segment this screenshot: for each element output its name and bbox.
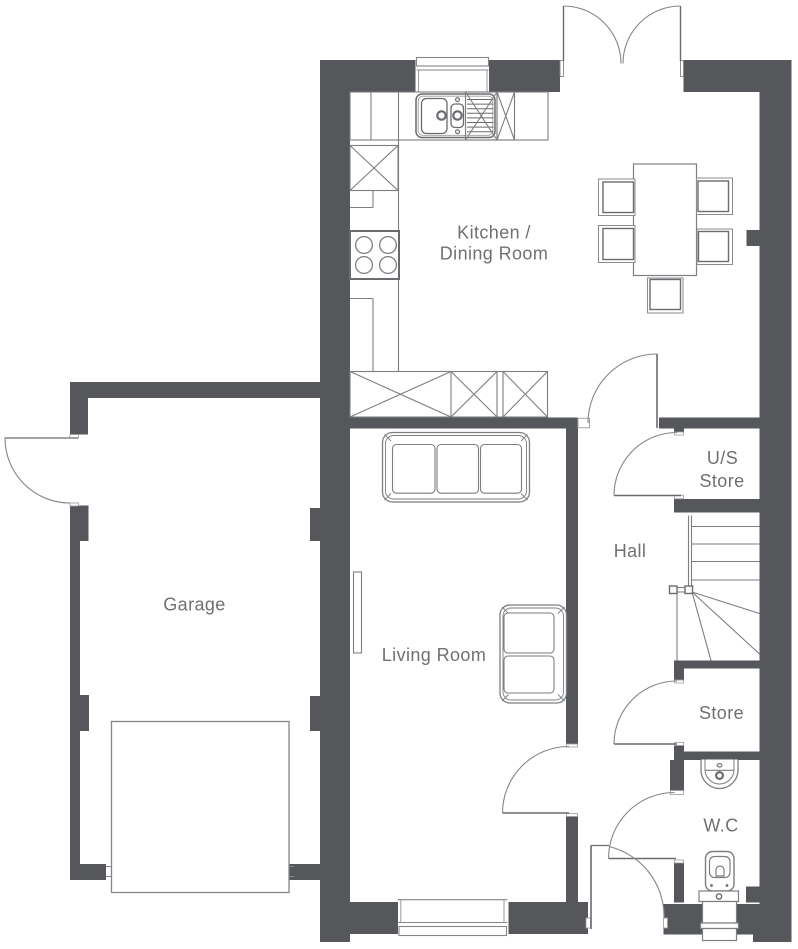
svg-text:Hall: Hall — [614, 541, 647, 561]
svg-text:Store: Store — [699, 471, 744, 491]
svg-text:Store: Store — [699, 703, 744, 723]
svg-text:Kitchen /: Kitchen / — [457, 223, 531, 243]
svg-text:Living Room: Living Room — [382, 645, 486, 665]
svg-text:W.C: W.C — [703, 816, 738, 836]
svg-text:Garage: Garage — [163, 595, 225, 615]
svg-text:U/S: U/S — [707, 448, 738, 468]
svg-text:Dining Room: Dining Room — [440, 244, 548, 264]
